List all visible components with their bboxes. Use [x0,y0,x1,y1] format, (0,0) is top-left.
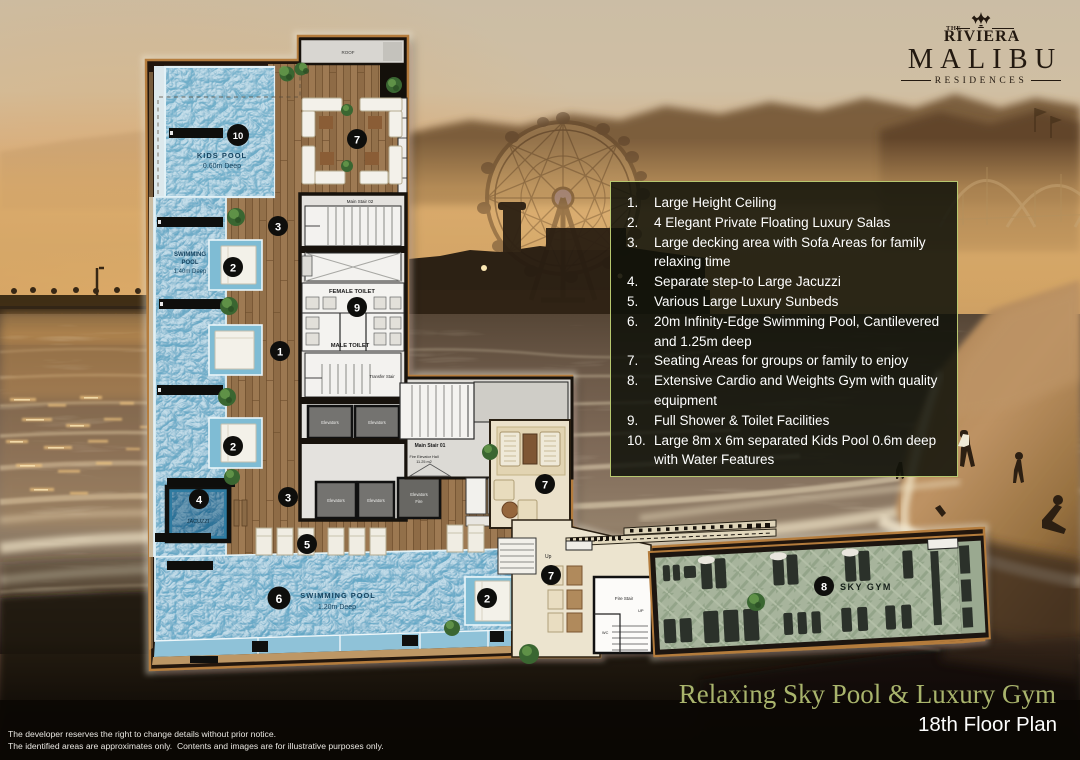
svg-text:9: 9 [354,303,360,315]
svg-text:6: 6 [276,592,283,606]
svg-text:Fire Elevator Hall: Fire Elevator Hall [409,455,438,459]
svg-text:Main Stair 01: Main Stair 01 [415,443,446,449]
svg-text:4: 4 [196,495,203,507]
svg-text:0.60m Deep: 0.60m Deep [203,163,241,170]
svg-text:KIDS POOL: KIDS POOL [197,151,247,160]
svg-text:Elevators: Elevators [327,498,344,503]
svg-text:Elevators: Elevators [321,420,338,425]
svg-text:SWIMMING POOL: SWIMMING POOL [300,591,375,600]
svg-text:Elevators: Elevators [410,492,427,497]
svg-text:Elevators: Elevators [367,498,384,503]
svg-text:POOL: POOL [181,260,198,266]
svg-text:1.20m Deep: 1.20m Deep [318,604,356,611]
svg-text:MALE TOILET: MALE TOILET [331,343,370,349]
svg-text:WC: WC [602,631,609,635]
svg-text:1: 1 [277,347,283,359]
svg-text:Main Stair 02: Main Stair 02 [347,199,374,204]
svg-text:Up: Up [545,554,552,560]
svg-text:3: 3 [275,222,281,234]
svg-text:7: 7 [548,571,554,583]
svg-text:5: 5 [304,540,310,552]
svg-text:7: 7 [354,135,360,147]
svg-text:Fire: Fire [415,499,423,504]
svg-text:2: 2 [230,263,236,275]
svg-text:1.40m Deep: 1.40m Deep [174,269,207,275]
svg-text:SWIMMING: SWIMMING [174,252,206,258]
svg-text:3: 3 [285,493,291,505]
svg-text:Transfer Stair: Transfer Stair [369,374,395,379]
svg-text:FEMALE TOILET: FEMALE TOILET [329,289,375,295]
svg-text:11.25 m2: 11.25 m2 [416,460,432,464]
svg-text:JACUZZI: JACUZZI [187,519,210,525]
svg-text:2: 2 [230,442,236,454]
svg-text:2: 2 [484,594,490,606]
svg-text:10: 10 [233,131,244,142]
svg-text:8: 8 [821,582,827,594]
svg-text:ROOF: ROOF [342,50,355,55]
svg-text:UP: UP [638,608,644,613]
svg-text:Fire Stair: Fire Stair [615,596,634,601]
svg-text:SKY GYM: SKY GYM [840,582,892,592]
svg-text:7: 7 [542,480,548,492]
svg-text:Elevators: Elevators [368,420,385,425]
